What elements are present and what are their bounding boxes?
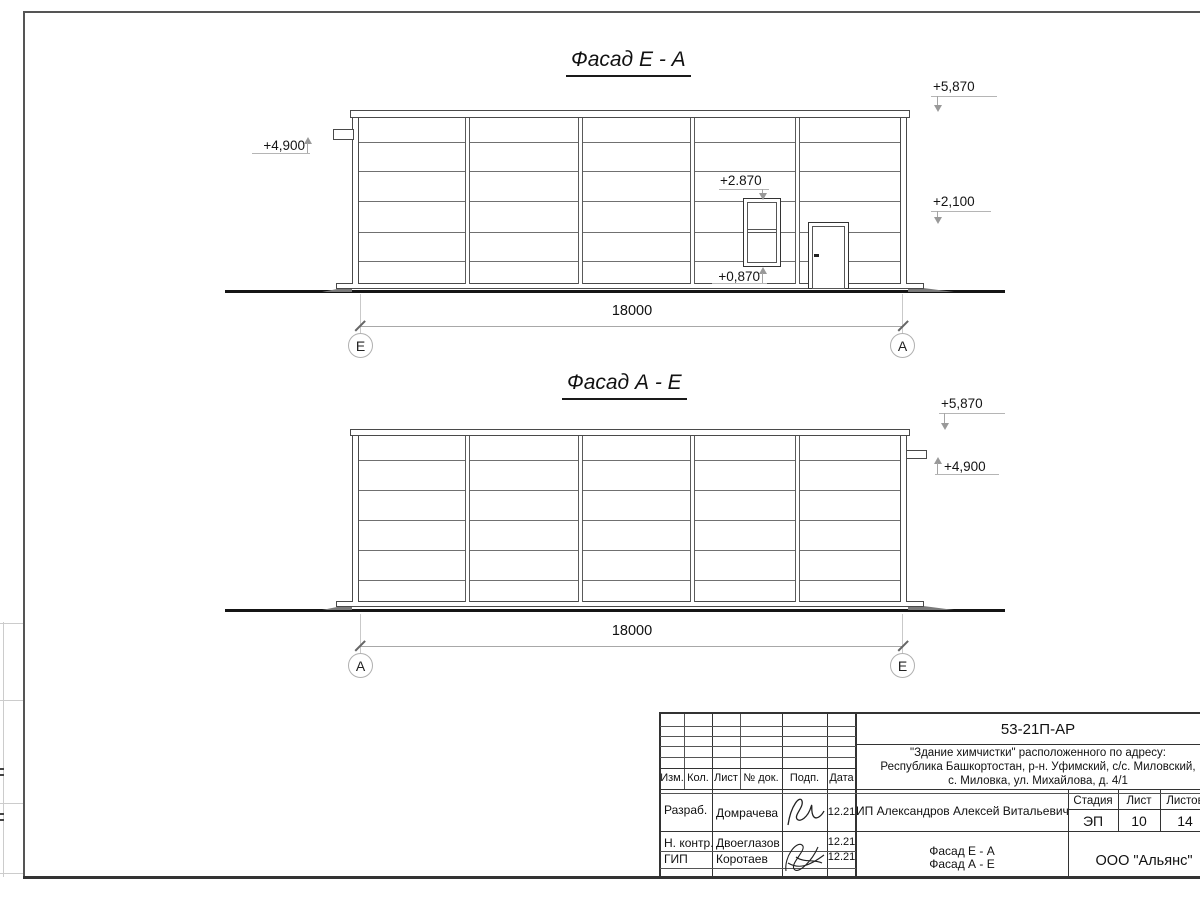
elevation-mark-label: +0,870 [710,269,760,284]
signature-domracheva [784,793,826,831]
facade2-panel-line [358,580,902,581]
elevation-mark-label: +2,100 [933,194,975,209]
side-stamp-line [0,873,23,874]
project-code: 53-21П-АР [856,721,1200,738]
door-leaf [812,226,845,289]
elevation-mark-label: +4,900 [250,138,305,153]
title-block-line [660,768,856,769]
side-stamp-line [0,623,23,624]
facade1-panel-line [358,201,902,202]
extension-line [902,614,903,654]
frame-left [23,11,25,878]
facade2-corner-column-left [352,436,359,602]
window-middle-rail [748,229,776,233]
role-label: ГИП [664,852,688,866]
extension-line [360,614,361,654]
dimension-line [360,326,903,327]
facade2-corner-column-right [900,436,907,602]
title-block-col-data: Дата [827,772,856,784]
title-block-col-izm: Изм. [660,772,684,784]
elevation-mark-line [252,153,310,154]
facade2-mullion [578,436,583,602]
project-address: "Здание химчистки" расположенного по адр… [858,747,1200,788]
title-block-col-list: Лист [712,772,740,784]
sheet-title: Фасад Е - А Фасад А - Е [856,845,1068,871]
facade1-corner-column-left [352,118,359,284]
title-block-line [856,744,1200,745]
frame-top [23,11,1200,13]
date-label: 12.21 [827,806,856,818]
drawing-sheet: Фасад Е - А +5,870 +2,100 +4,900 +2.870 … [0,0,1200,900]
side-stamp-line [3,622,4,877]
company-name: ООО "Альянс" [1068,853,1200,869]
facade2-mullion [465,436,470,602]
stage-value: ЭП [1068,813,1118,829]
facade1-panel-line [358,171,902,172]
title-block-col-ndok: № док. [740,772,782,784]
stage-label: Стадия [1068,795,1118,807]
dimension-line [360,646,903,647]
elevation-mark-line [939,413,1005,414]
axis-circle-left: Е [348,333,373,358]
title-block-line [660,746,856,747]
title-block-col-kol: Кол. [684,772,712,784]
project-address-line: с. Миловка, ул. Михайлова, д. 4/1 [858,775,1200,789]
dimension-label: 18000 [600,303,664,319]
dimension-label: 18000 [600,623,664,639]
title-block-line [660,726,856,727]
elevation-mark-label: +5,870 [933,79,975,94]
project-address-line: "Здание химчистки" расположенного по адр… [858,747,1200,761]
facade2-base [336,601,924,607]
facade2-mullion [690,436,695,602]
elevation-arrow-down-icon [934,217,942,224]
frame-bottom [23,876,1200,879]
door-handle [814,254,819,257]
axis-circle-right: Е [890,653,915,678]
facade1-corner-column-right [900,118,907,284]
title-block-line [660,831,1200,832]
title-block-line [660,789,1200,790]
role-label: Н. контр. [664,836,714,850]
elevation-mark-line [935,474,999,475]
date-label: 12.21 [827,851,856,863]
elevation-arrow-down-icon [759,193,767,200]
elevation-mark-line [931,211,991,212]
sheet-value: 10 [1118,813,1160,829]
facade1-mullion [795,118,800,284]
name-label: Коротаев [716,852,768,866]
facade2-mullion [795,436,800,602]
side-stamp-text-fragment [0,813,4,815]
side-stamp-line [0,803,23,804]
side-stamp-text-fragment [0,774,4,776]
extension-line [902,294,903,334]
date-label: 12.21 [827,836,856,848]
elevation-arrow-down-icon [941,423,949,430]
facade2-parapet [350,429,910,436]
facade1-mullion [690,118,695,284]
facade2-panel-line [358,520,902,521]
vent-pipe-facade1 [333,129,354,140]
axis-circle-left: А [348,653,373,678]
title-block-col-podp: Подп. [782,772,827,784]
facade1-title: Фасад Е - А [566,48,691,77]
vent-pipe-facade2 [906,450,927,459]
elevation-arrow-up-icon [759,267,767,274]
title-block-line [1068,809,1200,810]
name-label: Двоеглазов [716,836,780,850]
sheet-label: Лист [1118,795,1160,807]
elevation-arrow-up-icon [934,457,942,464]
role-label: Разраб. [664,803,707,817]
facade1-mullion [578,118,583,284]
axis-circle-right: А [890,333,915,358]
elevation-mark-line [931,96,997,97]
side-stamp-line [0,700,23,701]
project-address-line: Республика Башкортостан, р-н. Уфимский, … [858,761,1200,775]
title-block-line [660,757,856,758]
facade1-parapet [350,110,910,118]
side-stamp-text-fragment [0,768,4,770]
facade1-panel-line [358,142,902,143]
elevation-mark-label: +4,900 [944,459,986,474]
name-label: Домрачева [716,806,778,820]
extension-line [360,294,361,334]
side-stamp-text-fragment [0,819,4,821]
title-block-line [660,736,856,737]
signature-koro-dvoe [782,833,828,877]
client-name: ИП Александров Алексей Витальевич [856,804,1068,818]
sheets-value: 14 [1160,813,1200,829]
elevation-arrow-up-icon [304,137,312,144]
elevation-mark-label: +2.870 [720,173,762,188]
facade1-mullion [465,118,470,284]
facade2-title: Фасад А - Е [562,371,687,400]
sheet-title-line: Фасад А - Е [856,858,1068,871]
facade2-panel-line [358,490,902,491]
facade2-panel-line [358,550,902,551]
elevation-mark-label: +5,870 [941,396,983,411]
elevation-arrow-down-icon [934,105,942,112]
facade2-panel-line [358,460,902,461]
title-block-line [660,793,1200,794]
sheets-label: Листов [1160,795,1200,807]
